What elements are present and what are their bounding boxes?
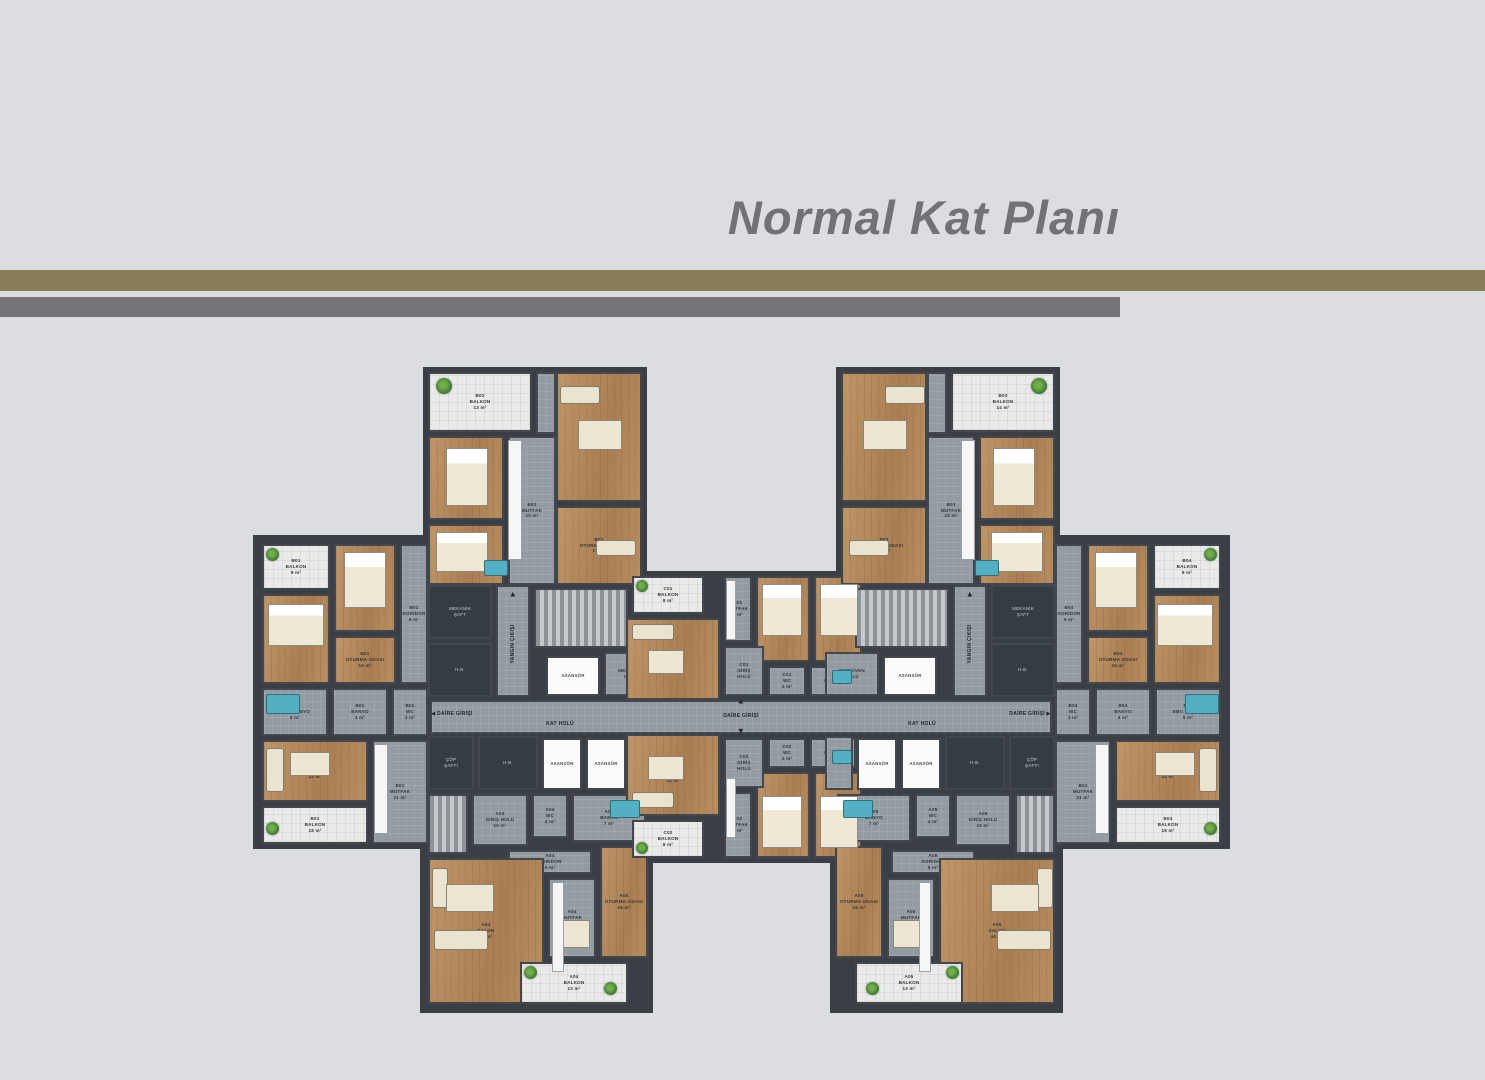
plan-text: YANGIN ÇIKIŞI [967, 625, 973, 664]
room-label: B04BANYO4 m² [1114, 703, 1132, 720]
plan-text: DAİRE GİRİŞİ ▶ [1009, 711, 1050, 717]
table [648, 756, 684, 780]
counter [1095, 744, 1109, 834]
room-label: MEKANİKŞAFT [449, 606, 471, 617]
bed [993, 448, 1035, 506]
room-label: A05OTURMA ODASI16 m² [840, 893, 878, 910]
room-label: B03MUTFAK10 m² [941, 502, 961, 519]
counter [961, 440, 975, 560]
room-b01-wc-3-m-: B01WC3 m² [392, 688, 428, 736]
bed [1157, 604, 1213, 646]
tub [266, 694, 300, 714]
room-label: A04GİRİŞ HOLÜ10 m² [486, 811, 515, 828]
slide: Normal Kat Planı B02BALKON13 m²B02SALON3… [0, 0, 1485, 1080]
room-label: B04BALKON9 m² [1177, 558, 1198, 575]
plant [266, 822, 279, 835]
table [290, 752, 330, 776]
room-c01-wc-2-m-: C01WC2 m² [768, 666, 806, 696]
room-stair [428, 794, 468, 854]
counter [726, 580, 736, 640]
room-asans-r: ASANSÖR [857, 738, 897, 790]
plant [1204, 822, 1217, 835]
bed [762, 584, 802, 636]
sofa [560, 386, 600, 404]
plant [524, 966, 537, 979]
room-tile [927, 372, 947, 434]
room-c01-gi-ri-hol-: C01GİRİŞHOLÜ [724, 646, 764, 696]
tub [1185, 694, 1219, 714]
room-label: A05WC4 m² [928, 807, 938, 824]
bed [268, 604, 324, 646]
room-asans-r: ASANSÖR [901, 738, 941, 790]
room-label: B04MUTFAK21 m² [1073, 783, 1093, 800]
room-b04-kori-dor-9-m-: B04KORİDOR9 m² [1055, 544, 1083, 684]
sofa [596, 540, 636, 556]
room-b01-banyo-4-m-: B01BANYO4 m² [332, 688, 388, 736]
bed [436, 532, 488, 572]
room-a05-gi-ri-hol-10-m-: A05GİRİŞ HOLÜ10 m² [955, 794, 1011, 846]
plan-text: YANGIN ÇIKIŞI [510, 625, 516, 664]
sofa [1037, 868, 1053, 908]
room-label: B02MUTFAK10 m² [522, 502, 542, 519]
room-h-b-: H.B. [428, 643, 492, 697]
room-label: C02BALKON8 m² [658, 830, 679, 847]
room-stair [1015, 794, 1055, 854]
table [991, 884, 1039, 912]
room-label: C02GİRİŞHOLÜ [737, 754, 751, 771]
room-label: B03BALKON14 m² [993, 393, 1014, 410]
table [446, 884, 494, 912]
room-tile [536, 372, 556, 434]
plant [604, 982, 617, 995]
plan-text: ▲ [966, 590, 974, 599]
bed [820, 584, 858, 636]
room-label: ASANSÖR [898, 673, 921, 679]
room-label: ASANSÖR [594, 761, 617, 767]
room-label: B04BALKON18 m² [1158, 816, 1179, 833]
room-label: B01BALKON18 m² [305, 816, 326, 833]
plant [266, 548, 279, 561]
room-b01-kori-dor-9-m-: B01KORİDOR9 m² [400, 544, 428, 684]
room-b04-banyo-4-m-: B04BANYO4 m² [1095, 688, 1151, 736]
bed [762, 796, 802, 848]
sofa [434, 930, 488, 950]
plant [946, 966, 959, 979]
sofa [885, 386, 925, 404]
room-a04-wc-4-m-: A04WC4 m² [532, 794, 568, 838]
room-label: B01WC3 m² [405, 703, 415, 720]
room-stair [855, 588, 949, 648]
room-label: H.B. [1018, 667, 1028, 673]
room-label: B01MUTFAK21 m² [390, 783, 410, 800]
plan-text: DAİRE GİRİŞİ [723, 713, 759, 719]
plant [866, 982, 879, 995]
room-label: A04WC4 m² [545, 807, 555, 824]
room-label: A05GİRİŞ HOLÜ10 m² [969, 811, 998, 828]
room-asans-r: ASANSÖR [546, 656, 600, 696]
room-label: H.B. [970, 760, 980, 766]
tub [843, 800, 873, 818]
plan-text: ▲ [509, 590, 517, 599]
sofa [997, 930, 1051, 950]
room-label: B04WC3 m² [1068, 703, 1078, 720]
sofa [1199, 748, 1217, 792]
room--p-afti: ÇÖPŞAFTI [428, 736, 474, 790]
sofa [849, 540, 889, 556]
tub [832, 750, 852, 764]
sofa [632, 624, 674, 640]
room-label: MEKANİKŞAFT [1012, 606, 1034, 617]
room-asans-r: ASANSÖR [586, 738, 626, 790]
room-mekani-k-aft: MEKANİKŞAFT [428, 585, 492, 639]
room-label: ASANSÖR [865, 761, 888, 767]
room-label: ASANSÖR [561, 673, 584, 679]
room-h-b-: H.B. [945, 736, 1005, 790]
plan-text: KAT HOLÜ [908, 721, 936, 727]
room-label: ASANSÖR [550, 761, 573, 767]
plan-text: KAT HOLÜ [546, 721, 574, 727]
table [648, 650, 684, 674]
room-label: ASANSÖR [909, 761, 932, 767]
room-label: B02BALKON13 m² [470, 393, 491, 410]
room-label: C02WC2 m² [782, 744, 792, 761]
room-label: H.B. [455, 667, 465, 673]
table [1155, 752, 1195, 776]
tub [484, 560, 508, 576]
room-label: ÇÖPŞAFTI [444, 757, 458, 768]
sofa [266, 748, 284, 792]
room-c02-wc-2-m-: C02WC2 m² [768, 738, 806, 768]
room-h-b-: H.B. [991, 643, 1055, 697]
counter [508, 440, 522, 560]
room-b04-wc-3-m-: B04WC3 m² [1055, 688, 1091, 736]
room-label: B01BANYO4 m² [351, 703, 369, 720]
room-a05-oturma-odasi-16-m-: A05OTURMA ODASI16 m² [835, 846, 883, 958]
tub [610, 800, 640, 818]
plan-text: ▲ [737, 697, 745, 706]
bed [446, 448, 488, 506]
room-a05-wc-4-m-: A05WC4 m² [915, 794, 951, 838]
table [578, 420, 622, 450]
room-label: ÇÖPŞAFTI [1025, 757, 1039, 768]
floor-plan: B02BALKON13 m²B02SALON34 m²B02OTURMA ODA… [0, 0, 1485, 1080]
room-a04-oturma-odasi-16-m-: A04OTURMA ODASI16 m² [600, 846, 648, 958]
room-asans-r: ASANSÖR [542, 738, 582, 790]
tub [975, 560, 999, 576]
room-label: B04KORİDOR9 m² [1057, 605, 1080, 622]
table [863, 420, 907, 450]
room-label: B01OTURMA ODASI16 m² [346, 651, 384, 668]
room-b01-oturma-odasi-16-m-: B01OTURMA ODASI16 m² [334, 636, 396, 684]
room-label: B01KORİDOR9 m² [402, 605, 425, 622]
plant [436, 378, 452, 394]
plant [1204, 548, 1217, 561]
room-label: C01BALKON8 m² [658, 586, 679, 603]
bed [1095, 552, 1137, 608]
room-label: C01WC2 m² [782, 672, 792, 689]
room-a04-gi-ri-hol-10-m-: A04GİRİŞ HOLÜ10 m² [472, 794, 528, 846]
plan-text: ▼ [737, 727, 745, 736]
room-label: A04OTURMA ODASI16 m² [605, 893, 643, 910]
room-asans-r: ASANSÖR [883, 656, 937, 696]
plant [1031, 378, 1047, 394]
room-label: H.B. [503, 760, 513, 766]
tub [832, 670, 852, 684]
plant [636, 842, 648, 854]
room-label: A04BALKON13 m² [564, 974, 585, 991]
room-label: B04OTURMA ODASI16 m² [1099, 651, 1137, 668]
room--p-afti: ÇÖPŞAFTI [1009, 736, 1055, 790]
counter [919, 882, 931, 972]
counter [374, 744, 388, 834]
room-label: A05BALKON13 m² [899, 974, 920, 991]
bed [344, 552, 386, 608]
room-label: B01BALKON9 m² [286, 558, 307, 575]
counter [552, 882, 564, 972]
counter [726, 778, 736, 838]
room-label: C01GİRİŞHOLÜ [737, 662, 751, 679]
plant [636, 580, 648, 592]
plan-text: ◀ DAİRE GİRİŞİ [431, 711, 472, 717]
room-mekani-k-aft: MEKANİKŞAFT [991, 585, 1055, 639]
room-stair [534, 588, 628, 648]
room-b04-oturma-odasi-16-m-: B04OTURMA ODASI16 m² [1087, 636, 1149, 684]
room-h-b-: H.B. [478, 736, 538, 790]
